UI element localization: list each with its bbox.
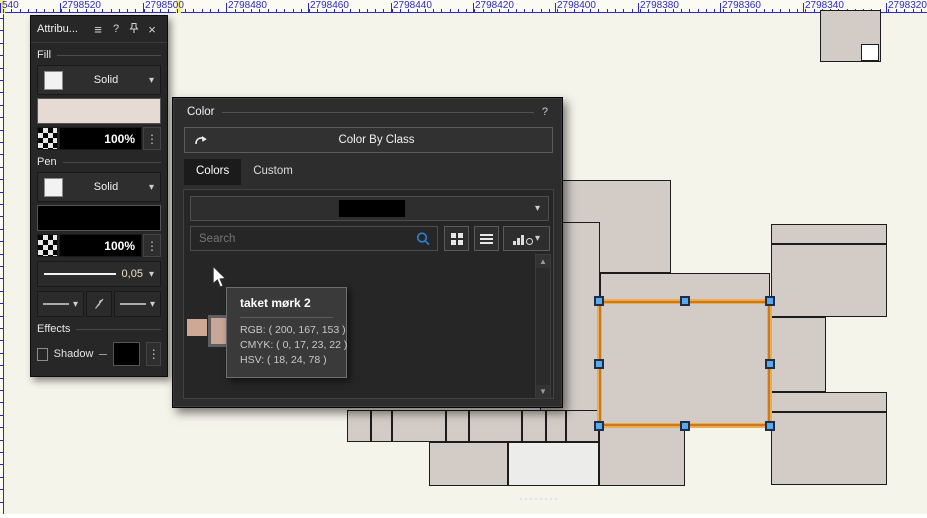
chevron-down-icon: ▾: [149, 182, 154, 193]
line-start-style-dropdown[interactable]: ▾: [37, 291, 84, 317]
chevron-down-icon: ▾: [149, 75, 154, 86]
attributes-panel: Attribu... ≡ ? × Fill Solid ▾ 100% ⋮ Pen…: [30, 15, 168, 377]
fill-color-swatch[interactable]: [37, 98, 161, 124]
search-icon: [415, 231, 431, 247]
panel-pin-icon[interactable]: [125, 22, 143, 36]
fill-opacity-field[interactable]: 100%: [59, 127, 142, 150]
search-input[interactable]: [197, 232, 411, 246]
building-shape[interactable]: [446, 410, 469, 442]
shadow-options-button[interactable]: ⋮: [146, 342, 161, 366]
dialog-resize-grip[interactable]: [520, 498, 557, 500]
color-swatch[interactable]: [187, 319, 207, 336]
selection-handle[interactable]: [680, 421, 690, 431]
selection-handle[interactable]: [680, 296, 690, 306]
building-shape[interactable]: [429, 442, 508, 486]
line-end-style-dropdown[interactable]: ▾: [114, 291, 161, 317]
building-shape[interactable]: [508, 442, 599, 486]
palette-dropdown[interactable]: ▾: [190, 196, 549, 221]
selection-handle[interactable]: [594, 359, 604, 369]
fill-opacity-options-button[interactable]: ⋮: [143, 127, 161, 150]
tab-colors[interactable]: Colors: [184, 159, 241, 185]
line-style-preview: [120, 303, 146, 305]
chevron-down-icon: ▾: [73, 299, 78, 310]
redo-arrow-icon: [193, 133, 209, 147]
building-shape[interactable]: [771, 224, 887, 244]
search-box[interactable]: [190, 226, 438, 251]
list-view-icon: [480, 234, 493, 244]
scroll-down-icon[interactable]: ▼: [536, 385, 550, 398]
color-dialog-title: Color: [187, 106, 214, 118]
selection-handle[interactable]: [594, 421, 604, 431]
attributes-titlebar[interactable]: Attribu... ≡ ? ×: [31, 16, 167, 43]
fill-section-header: Fill: [37, 49, 161, 61]
fill-type-value: Solid: [63, 74, 149, 86]
selection-handle[interactable]: [765, 421, 775, 431]
fill-type-dropdown[interactable]: Solid ▾: [37, 65, 161, 95]
opacity-checker-icon: [37, 234, 58, 257]
swatch-scrollbar[interactable]: ▲ ▼: [535, 254, 551, 399]
grid-view-icon: [451, 233, 463, 245]
tooltip-hsv: HSV: ( 18, 24, 78 ): [240, 353, 346, 368]
selection-outline[interactable]: [599, 301, 770, 426]
swatch-tooltip: taket mørk 2 RGB: ( 200, 167, 153 ) CMYK…: [226, 287, 347, 378]
chevron-down-icon: ▾: [150, 299, 155, 310]
building-shape[interactable]: [771, 412, 887, 485]
title-rule: [222, 112, 533, 113]
pen-section-header: Pen: [37, 156, 161, 168]
panel-close-icon[interactable]: ×: [143, 23, 161, 36]
mouse-cursor-icon: [211, 265, 229, 296]
tab-custom[interactable]: Custom: [241, 159, 305, 185]
color-by-class-button[interactable]: Color By Class: [184, 127, 553, 153]
building-shape[interactable]: [771, 392, 887, 412]
sort-button[interactable]: ▾: [503, 226, 550, 251]
panel-help-icon[interactable]: ?: [107, 23, 125, 36]
tooltip-divider: [240, 317, 333, 318]
building-shape[interactable]: [371, 410, 392, 442]
palette-name-redacted: [339, 200, 405, 217]
shadow-color-swatch[interactable]: [113, 342, 140, 366]
fill-type-swatch: [44, 71, 63, 90]
scroll-up-icon[interactable]: ▲: [536, 255, 550, 268]
app-screen: 5402798520279850027984802798460279844027…: [0, 0, 927, 518]
pen-width-value: 0,05: [122, 268, 143, 280]
color-by-class-label: Color By Class: [209, 134, 544, 146]
pen-opacity-options-button[interactable]: ⋮: [143, 234, 161, 257]
chevron-down-icon: ▾: [535, 233, 540, 244]
no-scale-icon: [92, 297, 106, 311]
building-shape[interactable]: [861, 44, 879, 61]
pen-opacity-field[interactable]: 100%: [59, 234, 142, 257]
pen-type-swatch: [44, 178, 63, 197]
line-style-preview: [43, 303, 69, 305]
grid-view-button[interactable]: [444, 226, 469, 251]
tooltip-title: taket mørk 2: [240, 296, 346, 310]
building-shape[interactable]: [392, 410, 446, 442]
pen-scale-toggle[interactable]: [86, 291, 112, 317]
building-shape[interactable]: [546, 410, 566, 442]
pen-width-preview: [44, 273, 116, 275]
list-view-button[interactable]: [474, 226, 499, 251]
building-shape[interactable]: [347, 410, 371, 442]
building-shape[interactable]: [770, 317, 826, 392]
effects-section-header: Effects: [37, 323, 161, 335]
selection-handle[interactable]: [765, 296, 775, 306]
tooltip-rgb: RGB: ( 200, 167, 153 ): [240, 323, 346, 338]
dialog-help-icon[interactable]: ?: [542, 106, 548, 118]
pen-type-dropdown[interactable]: Solid ▾: [37, 172, 161, 202]
pen-color-swatch[interactable]: [37, 205, 161, 231]
chevron-down-icon: ▾: [149, 269, 154, 280]
chevron-down-icon: ▾: [535, 203, 540, 214]
sort-by-icon: [513, 233, 533, 245]
building-shape[interactable]: [469, 410, 522, 442]
shadow-label: Shadow: [54, 348, 94, 360]
shadow-checkbox[interactable]: [37, 348, 48, 361]
shadow-dash: [99, 354, 107, 355]
pen-type-value: Solid: [63, 181, 149, 193]
selection-handle[interactable]: [765, 359, 775, 369]
building-shape[interactable]: [522, 410, 546, 442]
tooltip-cmyk: CMYK: ( 0, 17, 23, 22 ): [240, 338, 346, 353]
attributes-panel-title: Attribu...: [37, 23, 89, 35]
opacity-checker-icon: [37, 127, 58, 150]
building-shape[interactable]: [599, 426, 685, 486]
panel-menu-icon[interactable]: ≡: [89, 23, 107, 36]
building-shape[interactable]: [771, 244, 887, 317]
selection-handle[interactable]: [594, 296, 604, 306]
pen-width-dropdown[interactable]: 0,05 ▾: [37, 261, 161, 287]
clock-icon: [526, 238, 533, 245]
canvas-bottom-strip: [0, 514, 927, 518]
